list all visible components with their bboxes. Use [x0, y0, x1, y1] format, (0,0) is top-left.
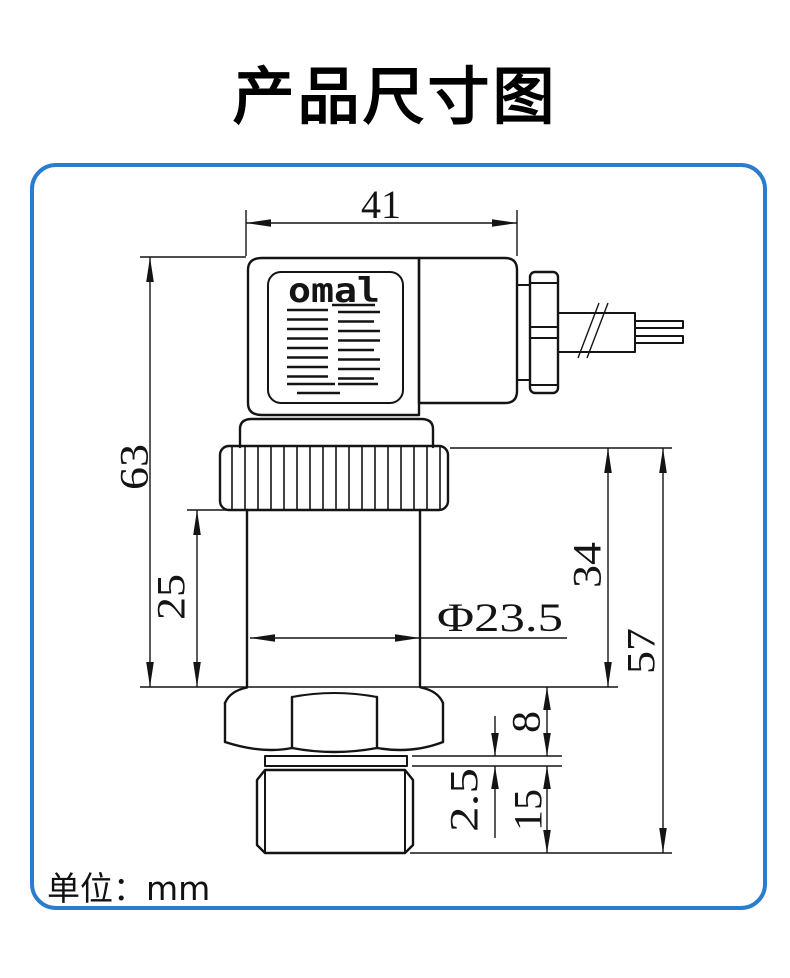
dim-label-8: 8	[504, 711, 549, 733]
dim-label-63: 63	[112, 444, 157, 490]
dim-body-diameter: Φ23.5	[250, 595, 567, 642]
dim-hex-thickness: 8	[504, 687, 551, 756]
gland-neck	[517, 285, 530, 380]
wire-lead-2	[635, 336, 683, 343]
label-text-lines	[287, 310, 380, 393]
washer	[265, 756, 407, 766]
body-cylinder	[247, 510, 420, 687]
dim-label-diameter: Φ23.5	[437, 595, 563, 640]
dim-overall-height: 63	[112, 257, 157, 687]
dim-label-41: 41	[361, 182, 401, 227]
dim-body-height: 25	[149, 510, 201, 687]
unit-label: 单位：mm	[47, 862, 210, 910]
dimension-drawing: omal	[0, 0, 790, 978]
dim-thread-length: 15	[506, 766, 551, 853]
connector-nose	[419, 258, 517, 403]
label-plate-group: omal	[268, 271, 403, 403]
dim-label-34: 34	[565, 542, 610, 588]
dim-label-2-5: 2.5	[442, 768, 487, 832]
dim-label-57: 57	[619, 628, 664, 674]
dim-lower-section-height: 34	[565, 448, 612, 687]
gland-nut	[530, 272, 558, 393]
cable-gland	[517, 272, 683, 393]
threaded-stud	[257, 770, 413, 853]
cable-break-marks	[578, 303, 608, 358]
dim-connector-width: 41	[246, 182, 517, 227]
dim-lower-overall-height: 57	[619, 448, 667, 853]
dim-label-25: 25	[149, 574, 194, 620]
wire-lead-1	[635, 321, 683, 328]
knurl-lines	[232, 447, 440, 509]
dim-label-15: 15	[506, 789, 551, 831]
dim-groove-thickness: 2.5	[442, 716, 499, 838]
shoulder	[240, 419, 433, 447]
knurled-ring	[220, 446, 448, 510]
hex-nut	[225, 688, 443, 753]
